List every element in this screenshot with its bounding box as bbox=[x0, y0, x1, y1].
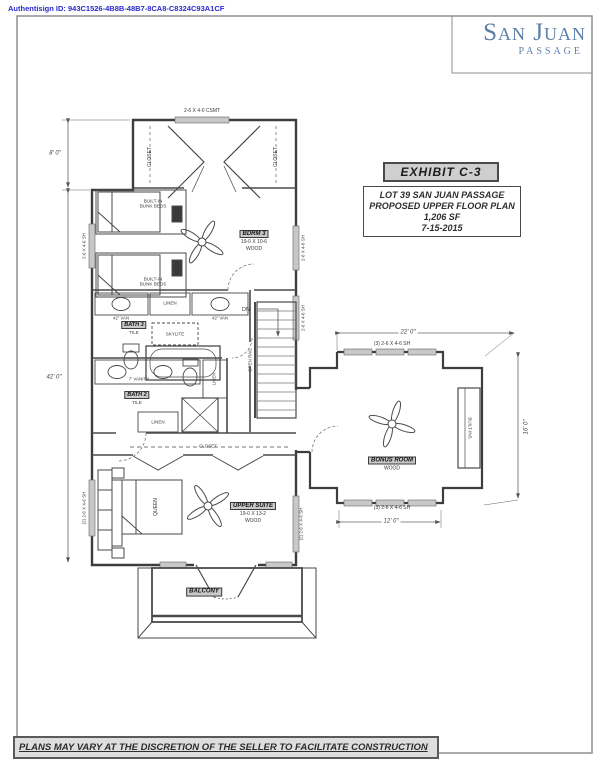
built-ins-label: BUILT-INS bbox=[467, 417, 472, 438]
bunk-beds-label: BUILT-IN BUNK BEDS bbox=[140, 199, 167, 210]
logo-subname: Passage bbox=[518, 46, 586, 57]
exhibit-title: EXHIBIT C-3 bbox=[383, 162, 499, 182]
queen-bed bbox=[98, 468, 182, 558]
window-label-sh2: (2) 2-6 X 4-6 SH bbox=[81, 492, 86, 525]
room-name: BATH 3 bbox=[121, 321, 146, 329]
door-arcs bbox=[118, 264, 338, 461]
dimension-bonus-width: 22' 0" bbox=[399, 330, 418, 337]
room-label-bonus: BONUS ROOM WOOD bbox=[368, 457, 416, 472]
room-floor: WOOD bbox=[245, 518, 261, 524]
room-size: 19-0 X 10-6 bbox=[241, 239, 267, 245]
room-label-balcony: BALCONY bbox=[186, 588, 222, 597]
room-name: BONUS ROOM bbox=[368, 457, 416, 465]
plan-info-line: LOT 39 SAN JUAN PASSAGE bbox=[380, 190, 505, 200]
dimension-left-height: 42' 0" bbox=[45, 375, 64, 382]
window-label-sh2: (2) 2-6 X 4-6 SH bbox=[298, 508, 303, 541]
dimension-upper-height: 8' 0" bbox=[47, 151, 63, 158]
room-name: BDRM 3 bbox=[239, 230, 268, 238]
room-label-bdrm3: BDRM 3 19-0 X 10-6 WOOD bbox=[239, 230, 268, 252]
window-label-csmt: 2-6 X 4-0 CSMT bbox=[184, 109, 220, 115]
window-label-sh3: (3) 2-6 X 4-6 SH bbox=[374, 506, 410, 512]
room-name: UPPER SUITE bbox=[230, 502, 276, 510]
room-floor: WOOD bbox=[246, 246, 262, 252]
vanity-7-label: 7' VANITY bbox=[129, 376, 150, 381]
logo-name: San Juan bbox=[483, 22, 586, 45]
skylite-label: SKYLITE bbox=[166, 331, 185, 336]
room-floor: TILE bbox=[129, 330, 139, 335]
room-name: BATH 2 bbox=[124, 391, 149, 399]
room-label-bath2: BATH 2 TILE bbox=[124, 391, 149, 405]
dimension-bonus-height: 16' 0" bbox=[524, 418, 531, 437]
linen-label: LINEN bbox=[163, 300, 176, 305]
plan-info-line: PROPOSED UPPER FLOOR PLAN bbox=[369, 201, 515, 211]
linen-label: LINEN bbox=[151, 419, 164, 424]
balcony-structure bbox=[138, 565, 316, 638]
closet-label: CLOSET bbox=[148, 147, 154, 167]
closet-label: CLOSET bbox=[199, 443, 217, 448]
room-floor: WOOD bbox=[384, 466, 400, 472]
linen-label: LINEN bbox=[213, 373, 218, 385]
plan-info-line: 7-15-2015 bbox=[421, 223, 462, 233]
ceiling-fan-icon bbox=[368, 400, 416, 448]
window-label-sh: 2-6 X 4-6 SH bbox=[300, 235, 305, 261]
open-rail-label: OPEN RAIL bbox=[247, 348, 252, 372]
room-floor: TILE bbox=[132, 400, 142, 405]
sanjuan-passage-logo: San Juan Passage bbox=[458, 22, 586, 57]
dimension-bonus-lower-width: 12' 0" bbox=[382, 519, 401, 526]
window-label-sh: 2-6 X 4-6 SH bbox=[81, 233, 86, 259]
vanity-42-label: 42" VAN bbox=[212, 317, 228, 322]
queen-bed-label: QUEEN bbox=[154, 498, 160, 516]
window-label-sh: 2-6 X 4-6 SH bbox=[300, 305, 305, 331]
bunk-beds-label: BUILT-IN BUNK BEDS bbox=[140, 277, 167, 288]
staircase bbox=[255, 302, 296, 418]
bath2-fixtures bbox=[95, 359, 288, 470]
footer-disclaimer: PLANS MAY VARY AT THE DISCRETION OF THE … bbox=[13, 736, 439, 759]
room-size: 19-0 X 13-2 bbox=[240, 511, 266, 517]
stairs-dn-label: DN bbox=[242, 307, 250, 313]
plan-info-line: 1,206 SF bbox=[424, 212, 461, 222]
document-page: Authentisign ID: 943C1526-4B8B-48B7-8CA8… bbox=[0, 0, 609, 780]
page-border bbox=[17, 16, 592, 753]
floor-plan-drawing bbox=[0, 0, 609, 780]
room-label-upper-suite: UPPER SUITE 19-0 X 13-2 WOOD bbox=[230, 502, 276, 524]
authentisign-id: Authentisign ID: 943C1526-4B8B-48B7-8CA8… bbox=[8, 4, 224, 13]
room-label-bath3: BATH 3 TILE bbox=[121, 321, 146, 335]
plan-info-box: LOT 39 SAN JUAN PASSAGE PROPOSED UPPER F… bbox=[363, 186, 521, 237]
closet-label: CLOSET bbox=[274, 147, 280, 167]
window-label-sh3: (3) 2-6 X 4-6 SH bbox=[374, 342, 410, 348]
